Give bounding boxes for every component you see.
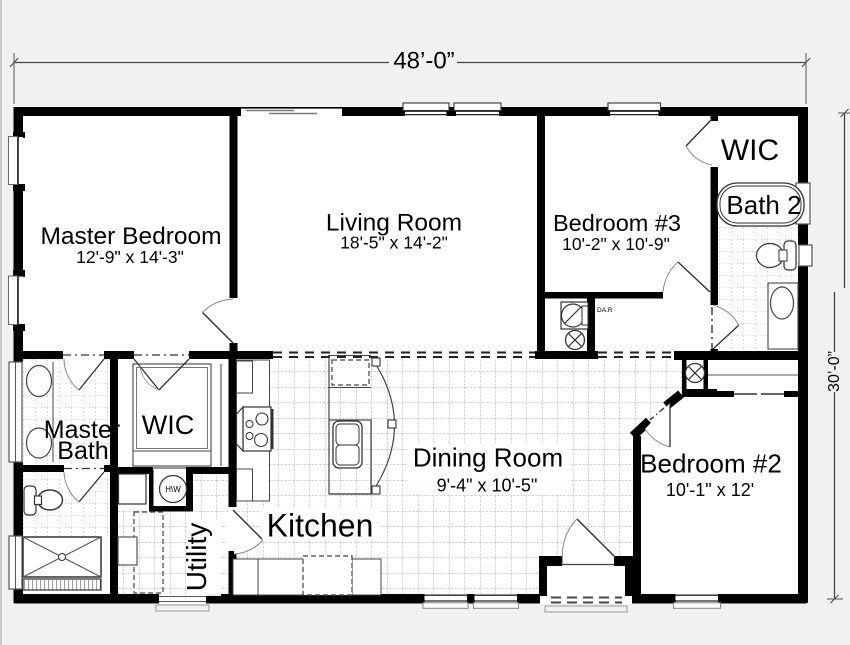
svg-text:10'-1" x 12': 10'-1" x 12': [666, 480, 754, 500]
svg-text:WIC: WIC: [721, 134, 779, 167]
svg-text:H\W: H\W: [165, 485, 181, 494]
svg-text:48’-0”: 48’-0”: [393, 48, 454, 75]
svg-text:Bath: Bath: [57, 437, 108, 465]
svg-text:30’-0”: 30’-0”: [826, 351, 843, 392]
svg-text:Dining Room: Dining Room: [413, 443, 563, 473]
svg-text:Utility: Utility: [181, 523, 212, 591]
svg-text:Bath 2: Bath 2: [726, 190, 801, 220]
svg-text:Master Bedroom: Master Bedroom: [40, 223, 221, 250]
svg-text:18'-5" x 14'-2": 18'-5" x 14'-2": [340, 233, 448, 253]
svg-text:Bedroom #2: Bedroom #2: [640, 449, 782, 479]
svg-text:12'-9" x 14'-3": 12'-9" x 14'-3": [76, 247, 184, 267]
svg-text:10'-2" x 10'-9": 10'-2" x 10'-9": [562, 234, 670, 254]
svg-text:WIC: WIC: [142, 410, 194, 440]
svg-text:Kitchen: Kitchen: [267, 508, 374, 544]
svg-text:Bedroom #3: Bedroom #3: [553, 210, 681, 236]
svg-text:9'-4" x 10'-5": 9'-4" x 10'-5": [437, 476, 538, 496]
svg-text:DA.R: DA.R: [597, 307, 613, 314]
